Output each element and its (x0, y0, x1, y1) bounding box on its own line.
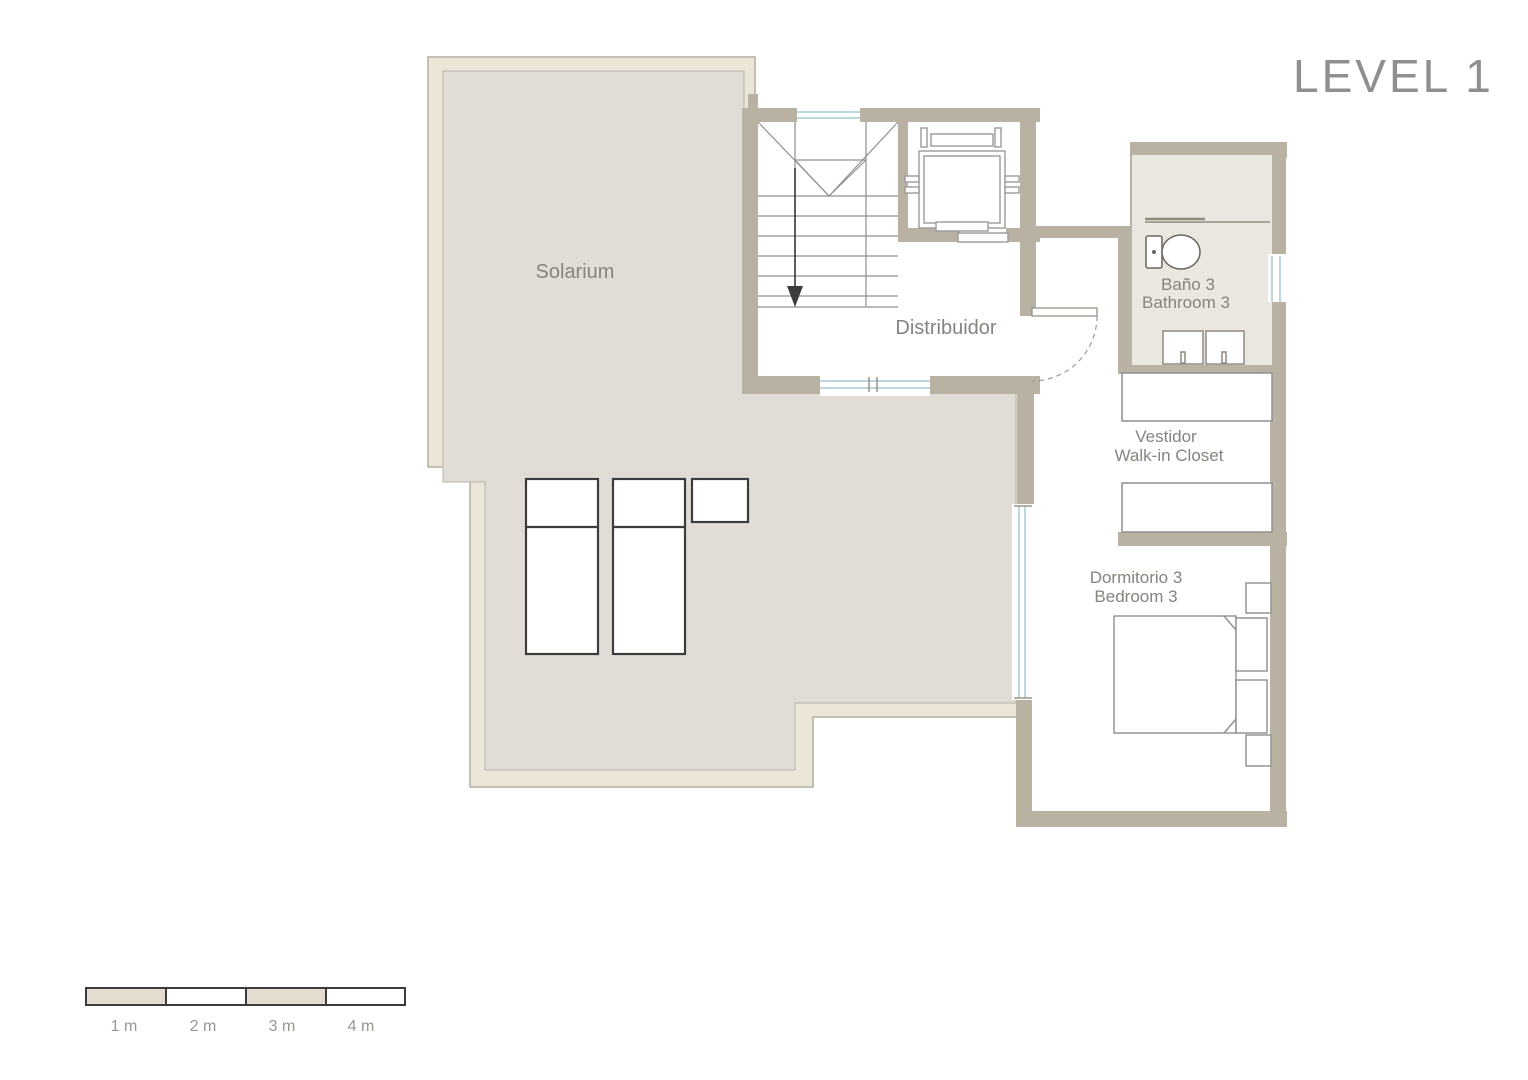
room-label-bathroom-es: Baño 3 (1161, 275, 1215, 294)
scale-label: 3 m (269, 1018, 296, 1035)
lounger-icon (526, 479, 598, 654)
hall-floor (898, 242, 1020, 376)
bathroom-window (1268, 254, 1288, 302)
wall-segment (1270, 142, 1286, 256)
closet-icon (1122, 483, 1272, 532)
wall-segment (742, 108, 758, 394)
wall-segment (1118, 238, 1132, 372)
wall-segment (1016, 811, 1287, 827)
hall-window (820, 374, 930, 396)
room-label-closet-es: Vestidor (1135, 427, 1197, 446)
scale-bar: 1 m 2 m 3 m 4 m (86, 988, 405, 1035)
room-label-solarium: Solarium (536, 261, 615, 283)
nightstand-icon (1246, 583, 1271, 613)
hall-door (1032, 308, 1097, 381)
elevator-door (958, 233, 1008, 242)
door-leaf (1032, 308, 1097, 316)
scale-label: 2 m (190, 1018, 217, 1035)
wall-segment (1035, 226, 1130, 238)
pillow (1236, 680, 1267, 733)
wall-segment (1118, 532, 1287, 546)
room-label-bedroom-en: Bedroom 3 (1094, 587, 1177, 606)
bathroom (1132, 155, 1272, 365)
wall-segment (1016, 698, 1032, 827)
wall-segment (1020, 108, 1036, 316)
pillow (1236, 618, 1267, 671)
double-sink-icon (1163, 331, 1244, 364)
wall-segment (748, 94, 758, 110)
nightstand-icon (1246, 735, 1271, 766)
room-label-closet-en: Walk-in Closet (1115, 446, 1224, 465)
lounger-icon (613, 479, 685, 654)
elevator-door (936, 222, 988, 231)
floor-plan-canvas: 1 m 2 m 3 m 4 m LEVEL 1 Solarium Distrib… (0, 0, 1528, 1080)
bedroom-window (1012, 504, 1034, 700)
bed-icon (1114, 583, 1271, 766)
room-label-bedroom-es: Dormitorio 3 (1090, 568, 1183, 587)
door-swing-arc (1032, 316, 1097, 381)
room-label-distribuidor: Distribuidor (895, 317, 996, 339)
wall-segment (898, 108, 908, 242)
scale-label: 4 m (348, 1018, 375, 1035)
page-title: LEVEL 1 (1293, 50, 1494, 102)
side-table-icon (692, 479, 748, 522)
stairwell-window (797, 106, 860, 124)
wall-segment (1018, 376, 1034, 506)
room-label-bathroom-en: Bathroom 3 (1142, 293, 1230, 312)
scale-label: 1 m (111, 1018, 138, 1035)
wall-segment (860, 108, 1040, 122)
toilet-icon (1146, 235, 1200, 269)
wall-segment (742, 376, 820, 394)
closet-icon (1122, 373, 1272, 421)
floor-plan-page: 1 m 2 m 3 m 4 m LEVEL 1 Solarium Distrib… (0, 0, 1528, 1080)
stairwell-floor (758, 122, 898, 308)
